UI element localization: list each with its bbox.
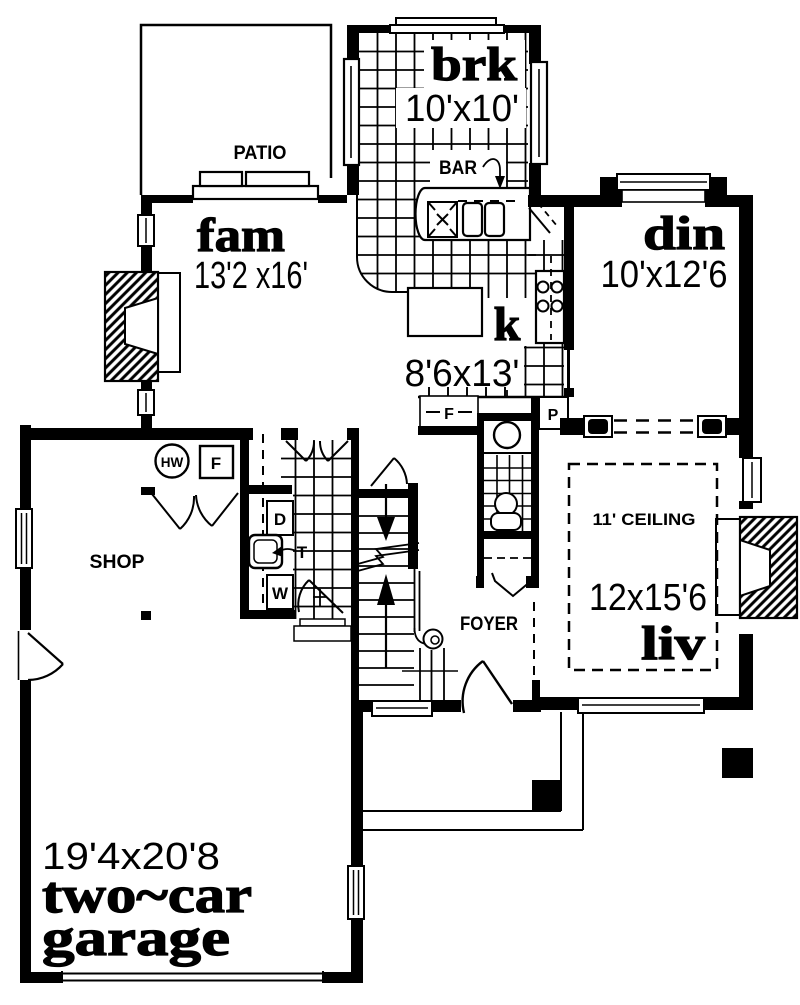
svg-text:SHOP: SHOP <box>90 552 145 573</box>
svg-text:8'6x13': 8'6x13' <box>405 353 520 395</box>
svg-text:11' CEILING: 11' CEILING <box>593 510 696 529</box>
svg-text:FOYER: FOYER <box>460 614 518 635</box>
svg-text:liv: liv <box>641 617 705 670</box>
svg-text:12x15'6: 12x15'6 <box>589 577 707 619</box>
svg-text:PATIO: PATIO <box>234 143 287 164</box>
svg-text:W: W <box>272 584 289 603</box>
svg-text:k: k <box>494 298 521 351</box>
svg-text:BAR: BAR <box>439 158 477 179</box>
svg-text:T: T <box>297 543 308 562</box>
svg-text:F: F <box>444 406 454 423</box>
svg-text:10'x10': 10'x10' <box>405 88 519 130</box>
svg-text:P: P <box>548 407 559 424</box>
svg-text:HW: HW <box>161 455 184 470</box>
svg-text:13'2 x16': 13'2 x16' <box>194 255 308 297</box>
svg-text:F: F <box>211 454 221 473</box>
svg-text:garage: garage <box>42 910 230 967</box>
svg-text:D: D <box>274 510 286 529</box>
svg-text:din: din <box>643 207 725 260</box>
svg-text:brk: brk <box>431 38 517 91</box>
svg-text:10'x12'6: 10'x12'6 <box>601 254 728 296</box>
